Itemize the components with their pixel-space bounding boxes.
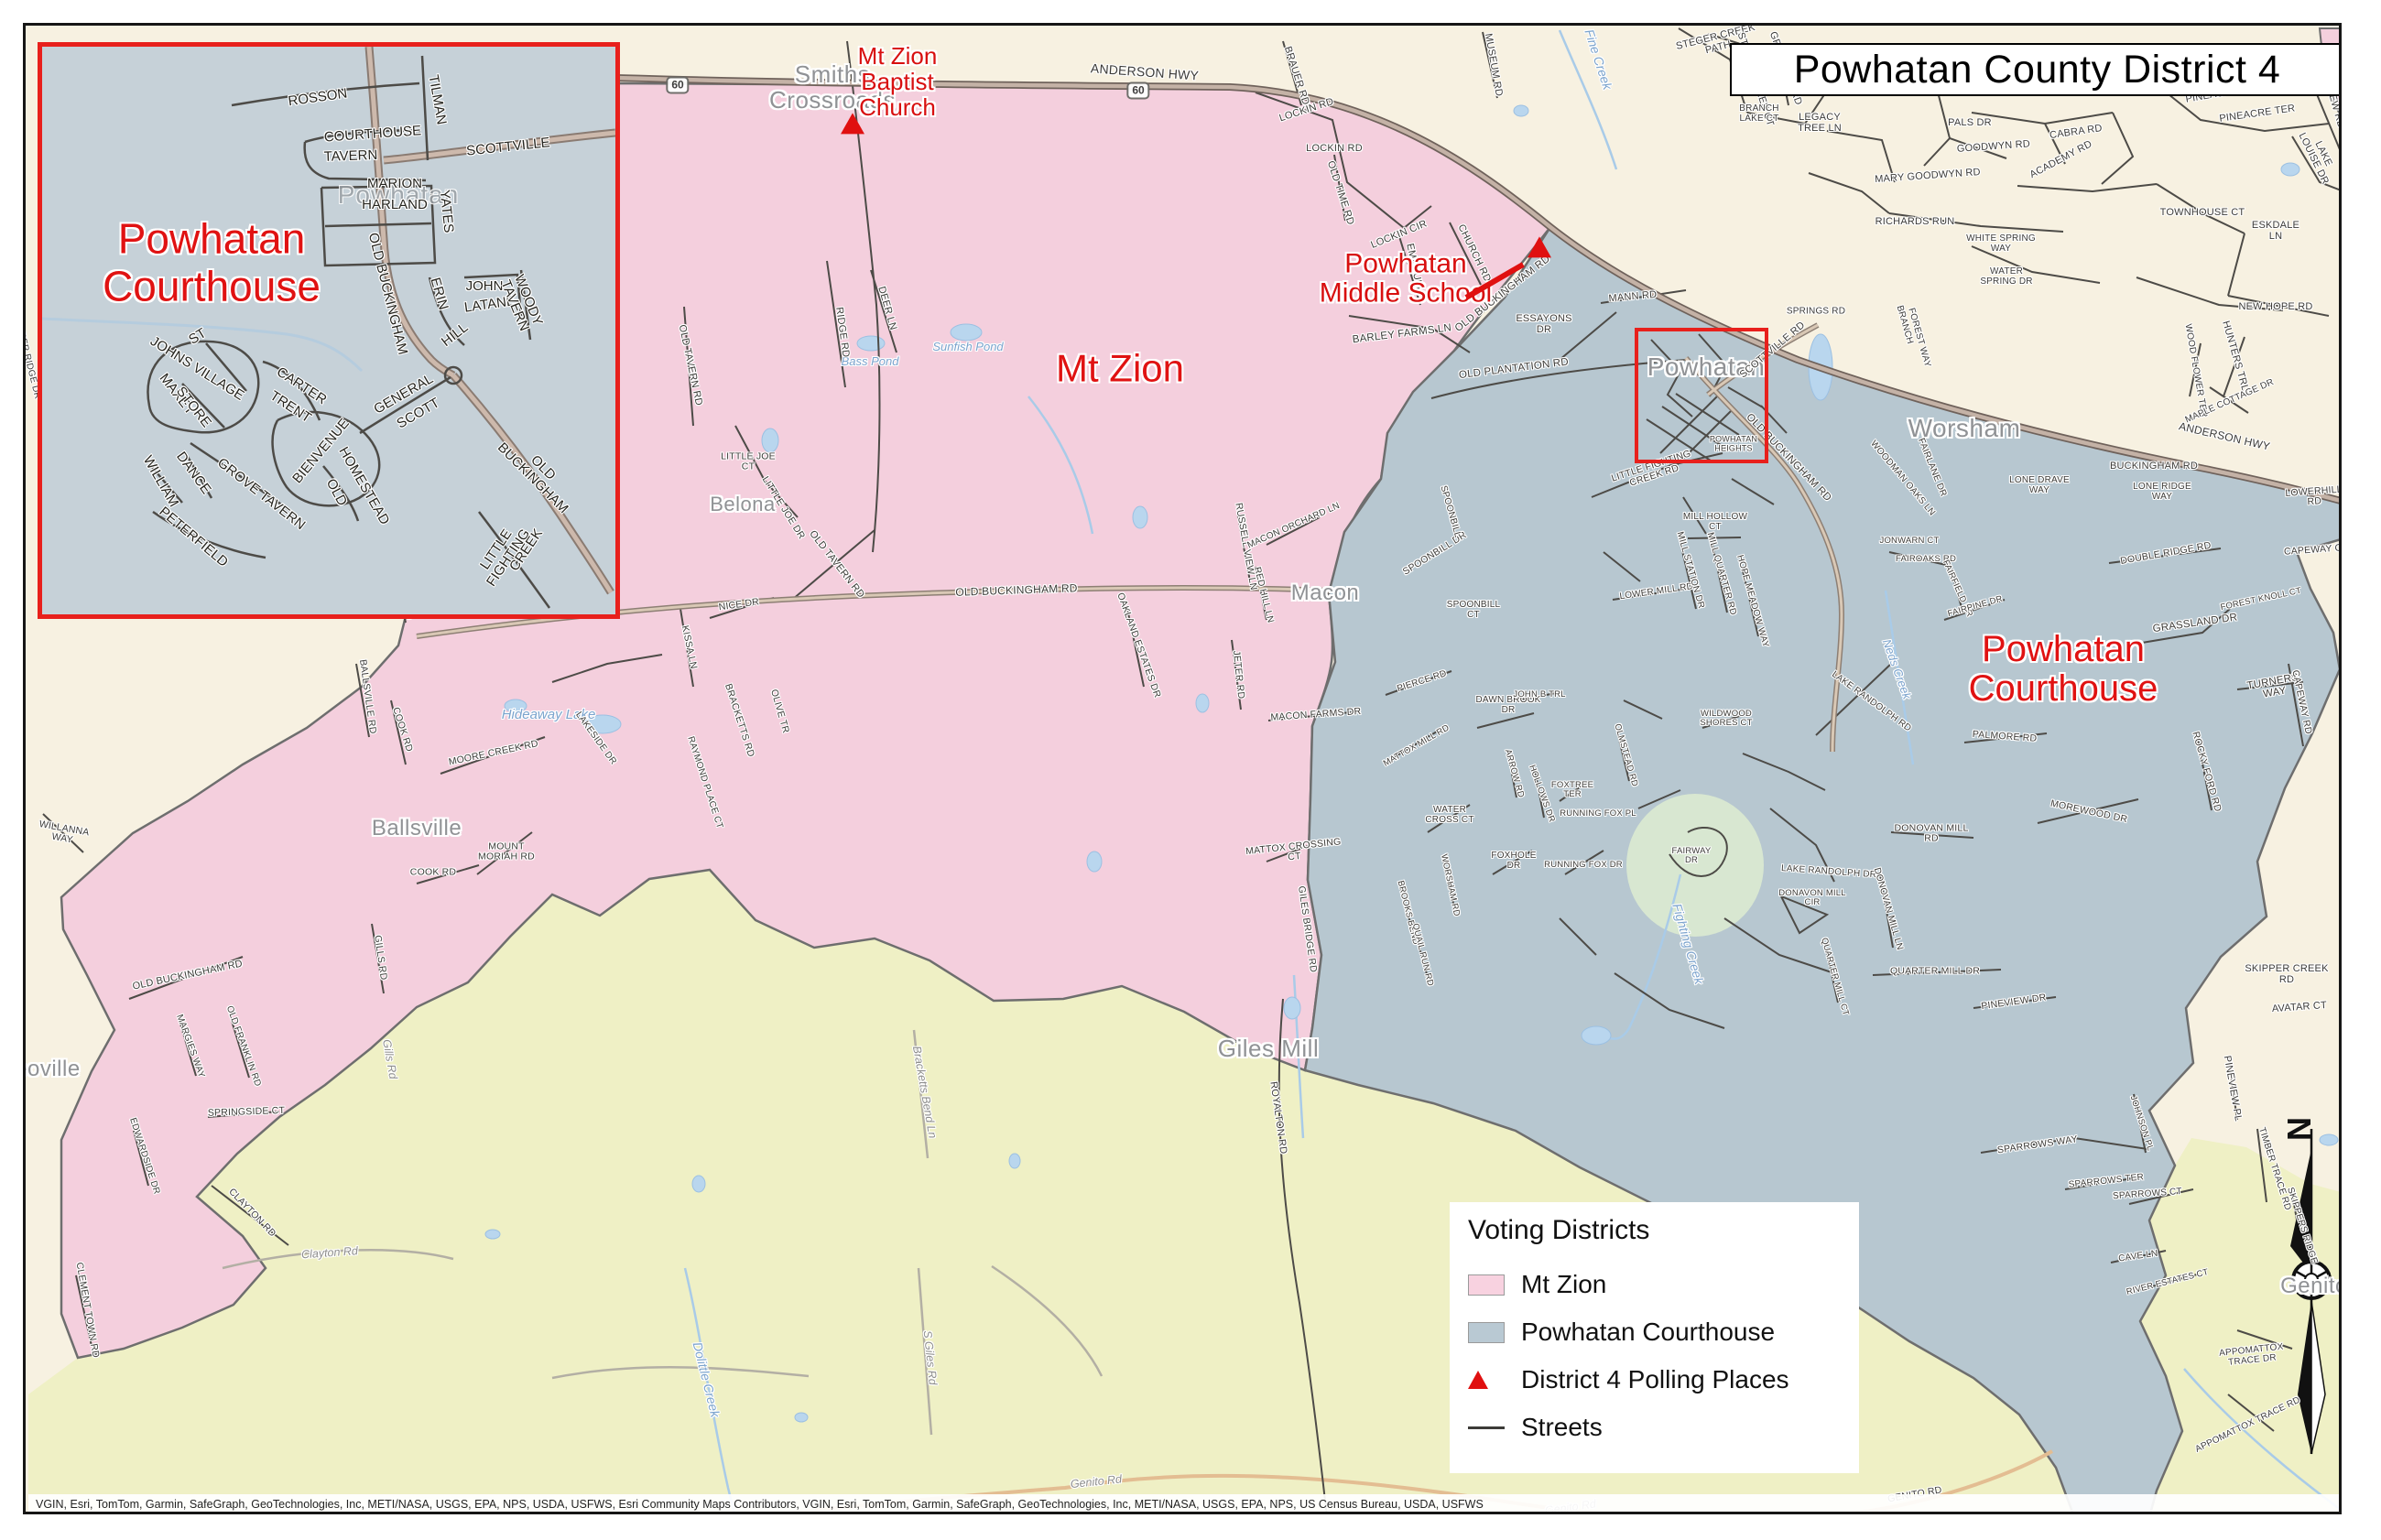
legend-item: Mt Zion xyxy=(1468,1261,1859,1308)
map-viewport: Fine CreekBass PondSunfish PondHideaway … xyxy=(23,23,2342,1514)
inset-street-label: SCOTT xyxy=(395,396,442,431)
attribution-text: VGIN, Esri, TomTom, Garmin, SafeGraph, G… xyxy=(28,1494,2342,1514)
inset-street-label: OLD xyxy=(323,477,350,509)
legend-title: Voting Districts xyxy=(1468,1215,1859,1246)
legend-swatch-blue xyxy=(1468,1322,1505,1343)
golf-course-area xyxy=(1626,794,1764,937)
inset-street-label: ERIN xyxy=(427,277,450,312)
inset-street-label: ST xyxy=(187,326,210,348)
page-title: Powhatan County District 4 xyxy=(1794,48,2281,92)
inset-street-label: LATANE xyxy=(463,294,516,316)
inset-street-label: MAXEY xyxy=(156,371,197,418)
legend-swatch-triangle xyxy=(1468,1371,1488,1389)
legend-item: Powhatan Courthouse xyxy=(1468,1308,1859,1356)
legend-swatch-pink xyxy=(1468,1274,1505,1296)
inset-street-label: WOODY TAVERN xyxy=(490,254,553,352)
inset-street-label: SCOTTVILLE xyxy=(466,136,551,159)
legend-item-label: District 4 Polling Places xyxy=(1521,1365,1789,1394)
legend-item: District 4 Polling Places xyxy=(1468,1356,1859,1404)
inset-street-label: STORE xyxy=(173,385,213,430)
legend-item-label: Powhatan Courthouse xyxy=(1521,1318,1775,1347)
inset-street-label: JOHN xyxy=(466,279,504,294)
legend: Voting Districts Mt ZionPowhatan Courtho… xyxy=(1450,1202,1859,1473)
inset-street-label: JOHNS VILLAGE xyxy=(147,334,246,404)
inset-street-label: LITTLE FIGHTING xyxy=(459,499,547,609)
inset-street-label: WILLIAM xyxy=(140,453,181,510)
inset-street-label: HOMESTEAD xyxy=(335,445,392,527)
inset-extent-box xyxy=(1635,328,1768,463)
legend-item-label: Mt Zion xyxy=(1521,1270,1606,1299)
inset-street-label: TAVERN xyxy=(323,148,377,165)
inset-street-label: OLD BUCKINGHAM xyxy=(495,430,582,517)
inset-street-label: CREEK xyxy=(507,526,546,574)
inset-street-label: HARLAND xyxy=(362,198,428,212)
inset-map: Powhatan ROSSONTILMANCOURTHOUSETAVERNSCO… xyxy=(38,42,620,619)
north-arrow-label: N xyxy=(2278,1109,2318,1149)
legend-item-label: Streets xyxy=(1521,1413,1603,1442)
inset-street-label: GROVE TAVERN xyxy=(214,456,308,534)
inset-street-label: CARTER xyxy=(274,364,329,407)
inset-street-label: GENERAL xyxy=(372,372,436,418)
legend-items: Mt ZionPowhatan CourthouseDistrict 4 Pol… xyxy=(1468,1261,1859,1451)
inset-street-label: PETERFIELD xyxy=(156,504,230,570)
legend-swatch-line xyxy=(1468,1426,1505,1429)
inset-street-label: OLD BUCKINGHAM xyxy=(365,232,410,357)
inset-street-label: TRENT xyxy=(267,389,314,427)
legend-item: Streets xyxy=(1468,1404,1859,1451)
title-box: Powhatan County District 4 xyxy=(1730,43,2342,96)
inset-street-label: YATES xyxy=(436,190,455,233)
inset-street-labels-layer: ROSSONTILMANCOURTHOUSETAVERNSCOTTVILLEMA… xyxy=(42,47,615,614)
inset-street-label: ROSSON xyxy=(288,86,349,109)
inset-street-label: BIENVENUE xyxy=(290,417,353,487)
inset-street-label: HILL xyxy=(440,320,472,350)
map-content: Fine CreekBass PondSunfish PondHideaway … xyxy=(23,23,2342,1514)
inset-street-label: TILMAN xyxy=(425,74,448,126)
inset-street-label: DANCE xyxy=(173,450,213,497)
inset-street-label: MARION xyxy=(367,177,422,191)
inset-street-label: COURTHOUSE xyxy=(323,124,421,146)
